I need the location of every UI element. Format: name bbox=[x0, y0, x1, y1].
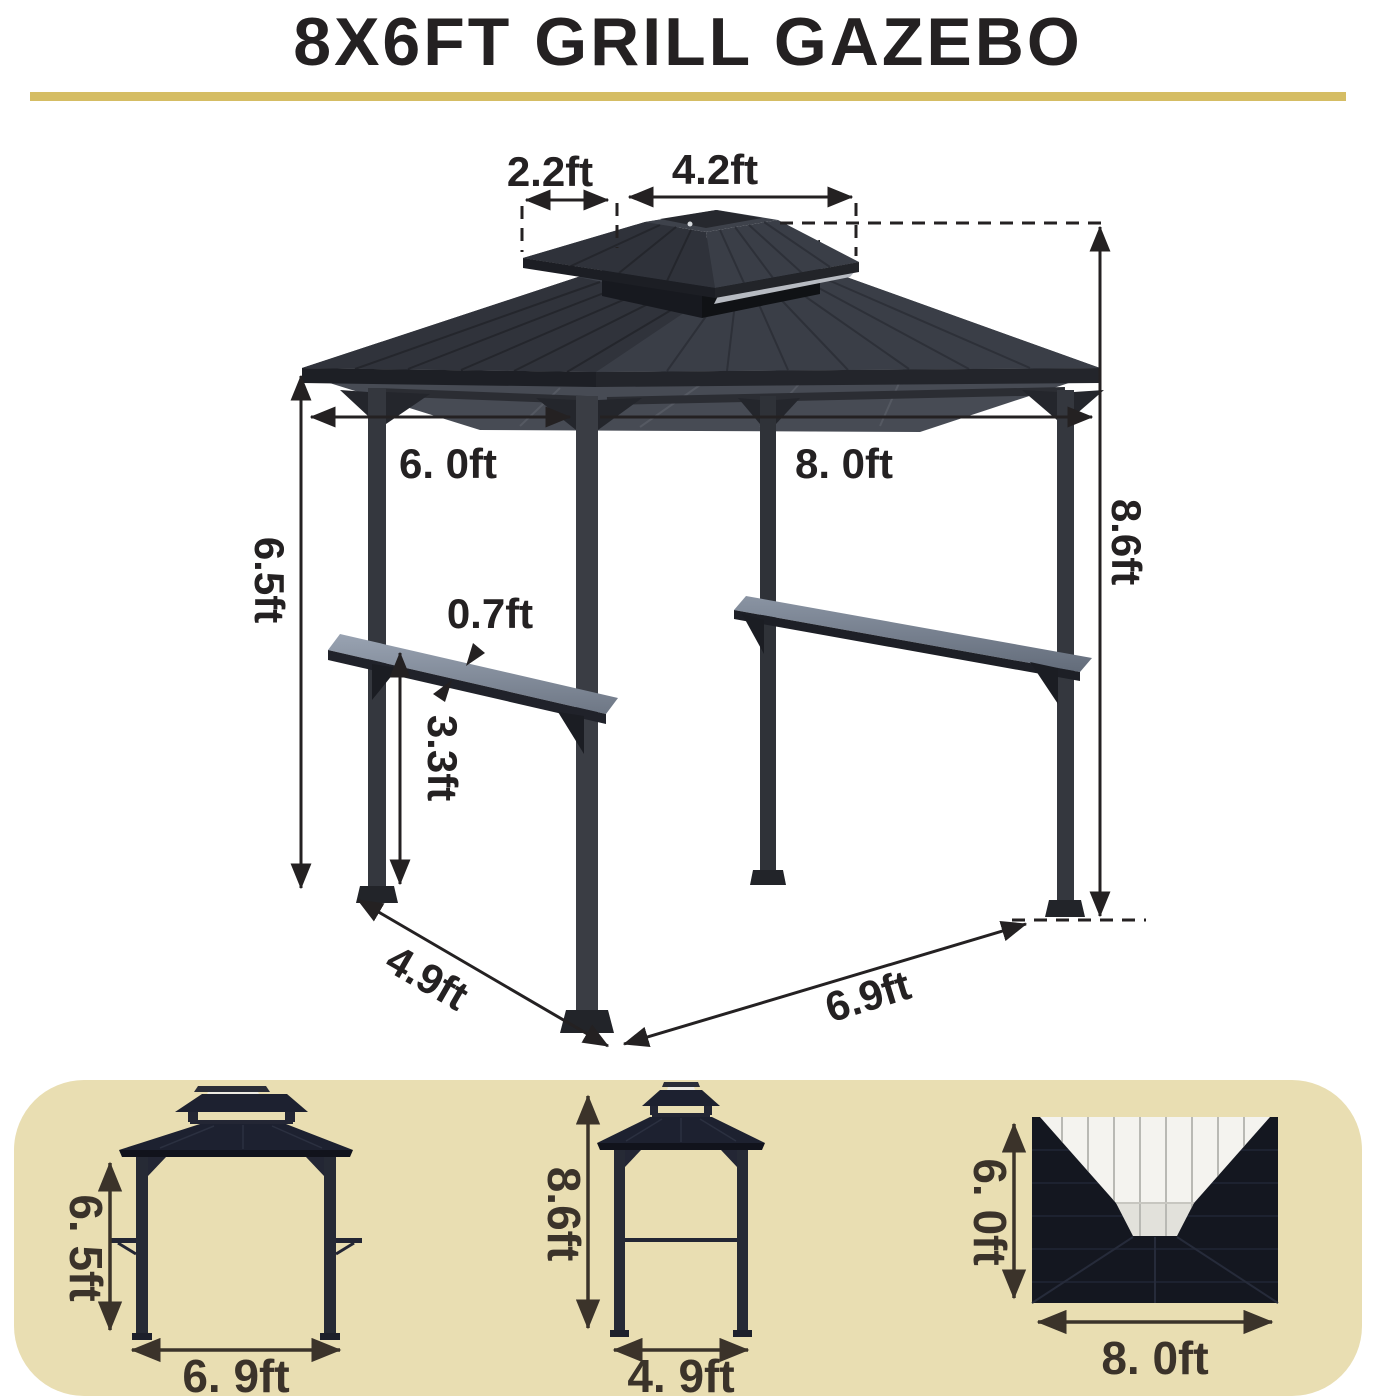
cupola-light-dot bbox=[688, 222, 693, 227]
front-view-width-label: 6. 9ft bbox=[182, 1350, 289, 1396]
main-dimension-diagram: 2.2ft 4.2ft 8.6ft 6. 0ft 8. 0ft 6.5ft 0.… bbox=[0, 140, 1376, 1080]
front-view-height-label: 6. 5ft bbox=[60, 1194, 112, 1301]
dim-label-cupola-side: 2.2ft bbox=[507, 148, 593, 195]
dim-label-cupola-top: 4.2ft bbox=[672, 146, 758, 193]
top-view-width-label: 8. 0ft bbox=[1101, 1332, 1208, 1384]
dim-label-shelf-depth: 0.7ft bbox=[447, 590, 533, 637]
page: 8X6FT GRILL GAZEBO bbox=[0, 0, 1376, 1400]
side-view-width-label: 4. 9ft bbox=[627, 1350, 734, 1396]
top-view: 6. 0ft 8. 0ft bbox=[964, 1117, 1278, 1384]
side-view-height-label: 8.6ft bbox=[538, 1167, 590, 1262]
right-shelf bbox=[734, 596, 1092, 704]
top-view-depth-label: 6. 0ft bbox=[964, 1158, 1016, 1265]
dim-label-post-height: 6.5ft bbox=[246, 537, 293, 623]
side-view: 8.6ft 4. 9ft bbox=[538, 1082, 765, 1396]
accent-divider bbox=[30, 92, 1346, 101]
dim-label-total-height: 8.6ft bbox=[1103, 499, 1150, 585]
dim-label-frame-depth: 6. 0ft bbox=[399, 440, 497, 487]
front-view: 6. 5ft 6. 9ft bbox=[60, 1086, 362, 1396]
left-post bbox=[368, 388, 386, 888]
views-panel: 6. 5ft 6. 9ft bbox=[14, 1080, 1362, 1396]
orthographic-views: 6. 5ft 6. 9ft bbox=[14, 1080, 1362, 1396]
dim-label-base-width: 6.9ft bbox=[820, 961, 916, 1031]
page-title: 8X6FT GRILL GAZEBO bbox=[0, 0, 1376, 84]
gazebo-illustration bbox=[302, 210, 1104, 1033]
dim-label-shelf-height: 3.3ft bbox=[419, 715, 466, 801]
dim-label-base-depth: 4.9ft bbox=[378, 936, 476, 1020]
dim-label-frame-width: 8. 0ft bbox=[795, 440, 893, 487]
right-post bbox=[1057, 390, 1074, 902]
